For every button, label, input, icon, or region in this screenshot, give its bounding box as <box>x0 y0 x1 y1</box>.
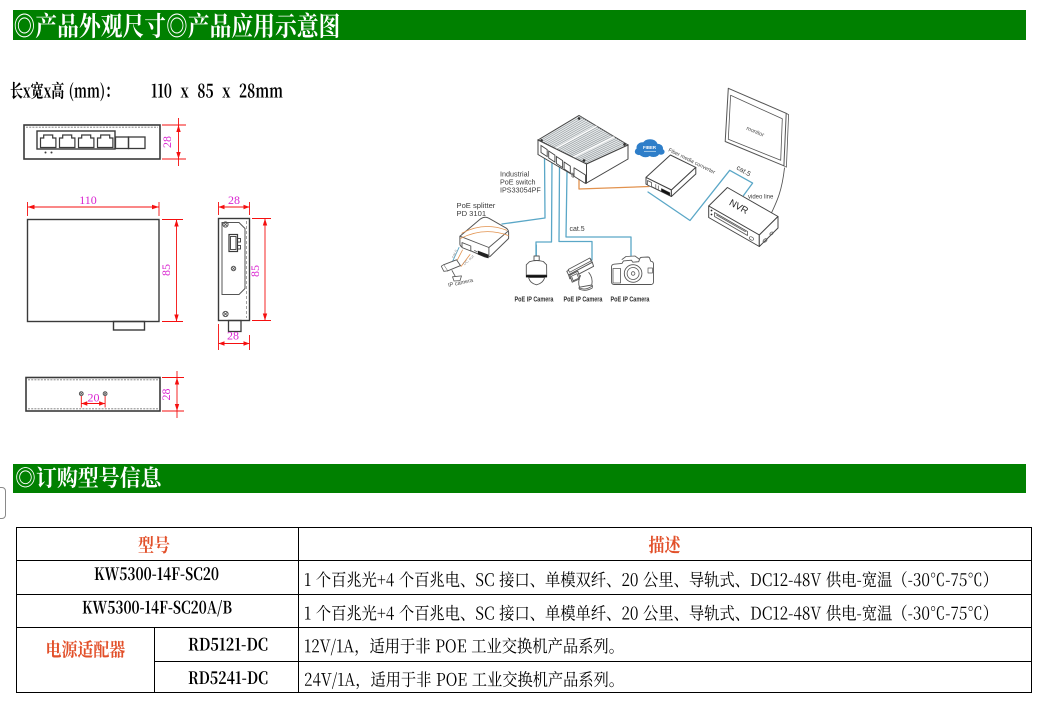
svg-text:PoE IP Camera: PoE IP Camera <box>515 297 554 304</box>
svg-text:85: 85 <box>248 265 262 277</box>
svg-text:PD 3101: PD 3101 <box>457 209 487 218</box>
svg-text:85: 85 <box>159 264 173 276</box>
svg-text:DC out: DC out <box>462 253 476 266</box>
svg-text:IPS33054PF: IPS33054PF <box>500 186 541 195</box>
svg-text:PoE IP Camera: PoE IP Camera <box>564 297 603 304</box>
svg-text:20: 20 <box>88 391 100 405</box>
svg-text:28: 28 <box>160 136 174 148</box>
svg-text:video line: video line <box>748 195 774 201</box>
svg-text:cat.5: cat.5 <box>570 226 585 233</box>
svg-text:28: 28 <box>159 389 173 401</box>
svg-text:IP camera: IP camera <box>448 278 475 289</box>
svg-text:PoE IP Camera: PoE IP Camera <box>611 297 650 304</box>
svg-text:cat.5: cat.5 <box>735 165 752 179</box>
svg-text:28: 28 <box>228 193 240 207</box>
svg-text:FIBER: FIBER <box>643 145 657 150</box>
svg-text:110: 110 <box>79 193 97 207</box>
svg-text:28: 28 <box>227 329 239 343</box>
